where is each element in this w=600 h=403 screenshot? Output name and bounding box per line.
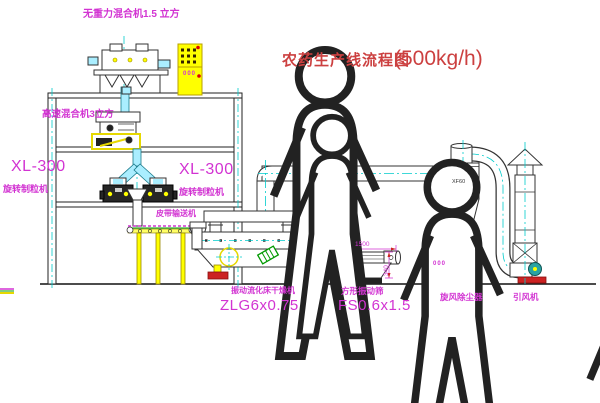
top-mixer [88,44,170,94]
flow-diagram-page: 无重力混合机1.5 立方 农药生产线流程图 (500kg/h) 高速混合机3立方… [0,0,600,403]
belt-conveyor-label: 皮带输送机 [156,210,196,218]
worker-floor3 [404,163,501,403]
cabinet-right-display: 000 [433,261,446,267]
granulator-left-model: XL-300 [11,159,66,175]
granulator-mid-name: 旋转制粒机 [179,188,224,197]
top-mixer-label: 无重力混合机1.5 立方 [83,10,180,20]
fan-name-label: 引风机 [513,293,539,302]
cyclone-name-label: 旋风除尘器 [440,293,483,302]
worker-ground [590,245,600,403]
cabinet-top-display: 000 [183,71,196,77]
granulator-left-name: 旋转制粒机 [3,185,48,194]
sieve-height-dimension: 340 [384,265,391,276]
sieve-model-label: FS0.6x1.5 [338,298,411,313]
edge-conveyor [0,289,14,293]
dryer-model-label: ZLG6x0.75 [220,298,299,313]
belt-conveyor [127,226,195,284]
cyclone-tag: XF60 [452,180,465,186]
worker-figures [274,50,600,403]
dryer-name-label: 振动流化床干燥机 [231,287,295,295]
control-cabinet-top [178,44,202,95]
sieve-length-dimension: 1500 [355,242,369,249]
sieve-name-label: 方形振动筛 [341,287,384,296]
page-title: 农药生产线流程图 [282,53,410,68]
page-title-capacity: (500kg/h) [394,48,483,69]
granulator-mid-model: XL-300 [179,162,234,178]
exhaust-stack-fan [508,142,546,284]
floor2-mixer-label: 高速混合机3立方 [42,110,114,120]
